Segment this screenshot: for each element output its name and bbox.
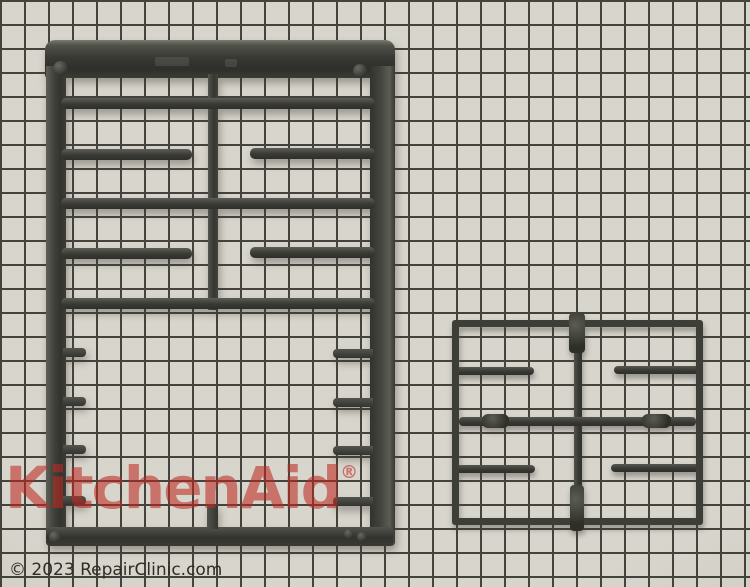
grate-stub-right (333, 398, 373, 407)
small-burner-grate (452, 313, 703, 531)
brand-text: KitchenAid (5, 454, 340, 522)
copyright-text: © 2023 RepairClinic.com (9, 560, 222, 580)
grate-bar-left (459, 367, 534, 375)
grate-foot-boss (53, 61, 68, 76)
grate-bar-full (61, 198, 375, 209)
large-grate-top-rail (45, 40, 395, 78)
grate-bar-full (61, 98, 375, 109)
grate-foot-boss (344, 529, 354, 539)
large-grate-center-bar (208, 74, 218, 310)
embossed-marking (155, 57, 189, 66)
grate-bar-left (61, 248, 192, 259)
grate-foot-boss (49, 531, 61, 543)
embossed-marking (225, 59, 237, 67)
grate-bar-right (614, 366, 696, 374)
grate-stub-left (63, 445, 86, 454)
registered-trademark-symbol: ® (340, 462, 358, 483)
grate-bar-right (611, 464, 696, 472)
grate-bar-boss (482, 414, 509, 428)
grate-stub-left (63, 397, 86, 406)
small-grate-top-boss (569, 313, 585, 353)
grate-bar-left (61, 149, 192, 160)
grate-bar-right (250, 247, 375, 258)
grate-bar-boss (642, 414, 671, 428)
grate-foot-boss (353, 64, 367, 78)
kitchenaid-watermark: KitchenAid® (5, 459, 358, 517)
small-grate-bottom-boss (570, 485, 584, 531)
product-photo: KitchenAid® © 2023 RepairClinic.com (0, 0, 750, 587)
grate-bar-full (61, 298, 375, 309)
grate-stub-left (63, 348, 86, 357)
grate-stub-right (333, 349, 373, 358)
large-grate-bottom-rail (46, 527, 393, 546)
grate-foot-boss (357, 532, 367, 542)
grate-bar-right (250, 148, 375, 159)
grate-bar-left (459, 465, 535, 473)
